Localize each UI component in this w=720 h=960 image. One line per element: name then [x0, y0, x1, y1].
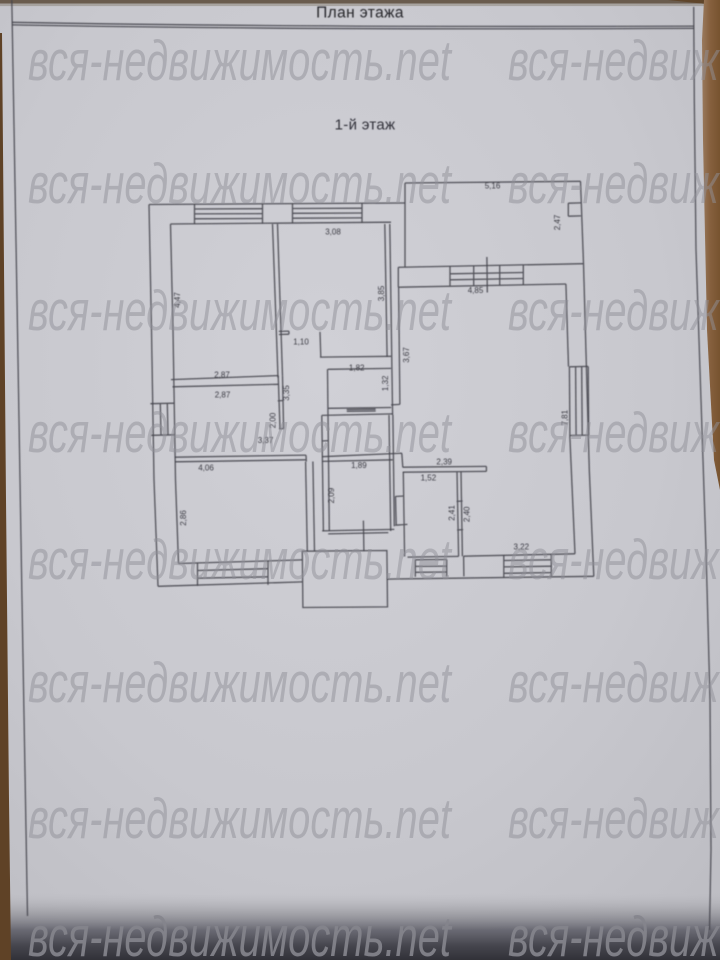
svg-text:2,47: 2,47	[553, 214, 562, 230]
svg-text:2,86: 2,86	[179, 510, 188, 526]
svg-text:2,87: 2,87	[214, 370, 230, 379]
svg-text:2,41: 2,41	[447, 505, 456, 521]
svg-text:1,82: 1,82	[349, 364, 365, 373]
svg-text:1-й этаж: 1-й этаж	[335, 117, 396, 134]
svg-text:3,67: 3,67	[402, 347, 411, 363]
svg-text:вся-недвижимость.net: вся-недвижимость.net	[28, 905, 453, 960]
svg-text:2,40: 2,40	[463, 506, 472, 522]
svg-text:вся-недвижимость.net: вся-недвижимость.net	[28, 528, 453, 592]
svg-text:вся-недвижимость.net: вся-недвижимость.net	[28, 29, 453, 93]
svg-text:вся-недвижимость.net: вся-недвижимость.net	[508, 651, 720, 715]
svg-text:5,16: 5,16	[485, 181, 501, 190]
svg-text:1,52: 1,52	[421, 473, 437, 482]
svg-text:вся-недвижимость.net: вся-недвижимость.net	[508, 905, 720, 960]
svg-text:1,32: 1,32	[381, 375, 390, 391]
svg-text:вся-недвижимость.net: вся-недвижимость.net	[508, 152, 720, 216]
svg-text:вся-недвижимость.net: вся-недвижимость.net	[28, 651, 453, 715]
svg-text:2,09: 2,09	[327, 487, 336, 503]
svg-text:вся-недвижимость.net: вся-недвижимость.net	[28, 401, 453, 465]
svg-text:вся-недвижимость.net: вся-недвижимость.net	[508, 279, 720, 343]
svg-text:2,87: 2,87	[215, 390, 231, 399]
svg-text:4,85: 4,85	[468, 286, 484, 295]
svg-text:План этажа: План этажа	[316, 4, 404, 21]
svg-text:вся-недвижимость.net: вся-недвижимость.net	[28, 152, 453, 216]
svg-text:вся-недвижимость.net: вся-недвижимость.net	[28, 279, 453, 343]
svg-text:3,35: 3,35	[282, 385, 291, 401]
svg-text:3,08: 3,08	[325, 227, 341, 236]
svg-text:вся-недвижимость.net: вся-недвижимость.net	[508, 787, 720, 851]
svg-text:вся-недвижимость.net: вся-недвижимость.net	[28, 787, 453, 851]
svg-text:вся-недвижимость.net: вся-недвижимость.net	[508, 29, 720, 93]
svg-text:вся-недвижимость.net: вся-недвижимость.net	[508, 528, 720, 592]
svg-text:вся-недвижимость.net: вся-недвижимость.net	[508, 401, 720, 465]
